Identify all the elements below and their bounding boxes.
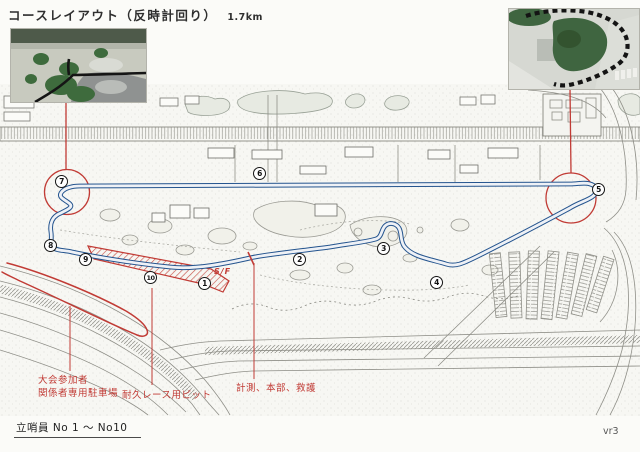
- start-finish-label: S/F: [214, 267, 231, 276]
- parking-label-line1: 大会参加者: [38, 372, 88, 386]
- course-marker-5: 5: [592, 183, 605, 196]
- course-marker-3: 3: [377, 242, 390, 255]
- page-title: コースレイアウト（反時計回り）: [8, 5, 217, 24]
- staff-note: 立哨員 No 1 ～ No10: [14, 420, 141, 438]
- course-marker-6: 6: [253, 167, 266, 180]
- turn7-aerial-photo: [10, 28, 147, 103]
- course-distance: 1.7km: [227, 12, 263, 23]
- course-marker-10: 10: [144, 271, 157, 284]
- parking-label-line2: 関係者専用駐車場: [38, 385, 118, 399]
- course-marker-7: 7: [55, 175, 68, 188]
- version-label: vr3: [603, 426, 619, 437]
- turn7-photo-art: [11, 29, 146, 102]
- turn5-aerial-photo: [508, 8, 640, 90]
- title-row: コースレイアウト（反時計回り） 1.7km: [8, 5, 263, 24]
- turn5-photo-art: [509, 9, 639, 89]
- course-marker-2: 2: [293, 253, 306, 266]
- course-marker-1: 1: [198, 277, 211, 290]
- scanned-course-layout-page: コースレイアウト（反時計回り） 1.7km: [0, 0, 640, 452]
- pit-label: 耐久レース用ピット: [122, 387, 212, 401]
- course-marker-8: 8: [44, 239, 57, 252]
- course-marker-9: 9: [79, 253, 92, 266]
- hq-label: 計測、本部、救護: [236, 380, 316, 394]
- course-marker-4: 4: [430, 276, 443, 289]
